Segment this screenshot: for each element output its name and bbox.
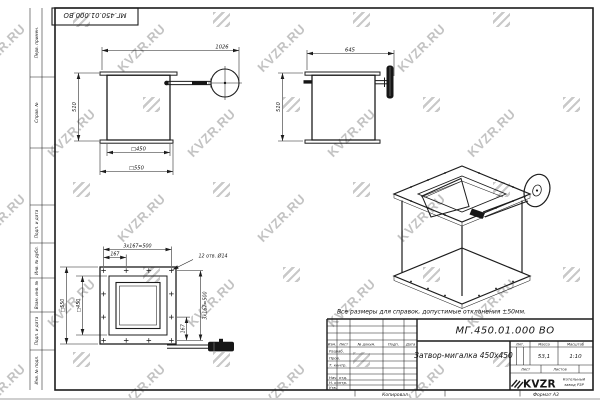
isometric-view (394, 166, 554, 309)
title-block-rows: Разраб. Пров. Т. контр. Нач. отд. Н. кон… (329, 348, 347, 390)
side-view: 645 510 (276, 48, 394, 144)
flange-outline (100, 267, 176, 344)
dim-offset-right: 167 (181, 324, 187, 333)
front-view: 1026 510 □450 □550 (72, 45, 242, 176)
valve-body (312, 75, 375, 140)
opening (116, 283, 160, 329)
dim-pitch-top: 3x167=500 (123, 244, 151, 250)
bottom-flange (100, 140, 173, 143)
doc-number: МГ.450.01.000 ВО (456, 326, 555, 337)
plan-view: 3x167=500 167 12 отв. Ø14 □450 □550 3x16… (60, 244, 234, 352)
bolt-holes (101, 268, 173, 342)
row-prov: Пров. (329, 355, 340, 360)
col-podp: Подп. (388, 342, 399, 346)
mass-label: Масса (538, 343, 549, 347)
col-doc: № докум. (357, 342, 376, 346)
company-name-line1: Котельный (563, 377, 586, 382)
margin-label: Подп. и дата (34, 209, 39, 238)
drawing-title: Затвор-мигалка 450x450 (414, 351, 513, 360)
mass-value: 53,1 (538, 354, 550, 360)
row-tkontr: Т. контр. (329, 362, 347, 367)
top-flange-iso (394, 166, 530, 222)
dim-offset-top: 167 (110, 252, 119, 258)
margin-label: Справ. № (34, 102, 39, 123)
drawing-sheet: KVZR.RUKVZR.RUKVZR.RUKVZR.RUKVZR.RUKVZR.… (0, 0, 600, 400)
margin-label: Взам. инв. № (34, 280, 39, 309)
scale-value: 1:10 (569, 354, 582, 360)
col-list: Лист (338, 342, 349, 346)
hinge-pin (304, 80, 313, 83)
lever-rod (192, 81, 207, 84)
row-nachotd: Нач. отд. (329, 375, 347, 380)
dim-pitch-right: 3x167=500 (203, 291, 209, 319)
margin-label: Перв. примен. (34, 27, 39, 58)
kvzr-stripes-icon (512, 380, 524, 389)
company-name-line2: завод РЗР (564, 382, 584, 387)
stamp-doc-number: МГ.450.01.000 ВО (63, 11, 127, 19)
row-razrab: Разраб. (329, 348, 344, 353)
logo-text: KVZR (523, 379, 556, 391)
scale-label: Масштаб (567, 343, 585, 347)
duct-outline (109, 276, 167, 335)
format-label: Формат А3 (533, 392, 559, 398)
row-utv: Утв. (329, 385, 337, 390)
pivot (164, 81, 169, 86)
sheet-label: Лист (520, 368, 531, 372)
margin-label: Инв. № дубл. (34, 246, 39, 275)
lit-label: Лит. (515, 343, 524, 347)
valve-body (107, 75, 170, 140)
dim-645: 645 (345, 48, 356, 54)
title-block-headers: Изм. Лист № докум. Подп. Дата (328, 342, 415, 346)
dim-1026: 1026 (215, 45, 229, 51)
counterweight-iso (520, 171, 554, 210)
drawing-svg: Перв. примен. Справ. № Подп. и дата Инв.… (0, 0, 600, 400)
dim-outer-550: □550 (60, 299, 66, 313)
dim-outer-550: □550 (129, 166, 145, 172)
kvzr-logo: KVZR Котельный завод РЗР (512, 377, 586, 391)
sheets-label: Листов (552, 368, 566, 372)
dim-inner-450: □450 (76, 299, 82, 313)
bottom-flange (305, 140, 380, 143)
col-data: Дата (405, 342, 415, 346)
general-note: Все размеры для справок, допустимые откл… (337, 309, 526, 316)
col-izm: Изм. (328, 342, 336, 346)
top-stamp: МГ.450.01.000 ВО (52, 8, 138, 25)
footer-strip: Копировал Формат А3 (355, 390, 559, 398)
dim-inner-450: □450 (131, 147, 147, 153)
flap-plate (422, 179, 469, 218)
copied-label: Копировал (382, 392, 408, 398)
dim-510: 510 (72, 101, 78, 112)
margin-labels: Перв. примен. Справ. № Подп. и дата Инв.… (34, 27, 39, 385)
title-block: Изм. Лист № докум. Подп. Дата Разраб. Пр… (327, 319, 593, 391)
weight-top-view (208, 342, 234, 352)
margin-label: Инв. № подл. (34, 356, 39, 385)
dim-510: 510 (276, 101, 282, 112)
dim-holes-note: 12 отв. Ø14 (198, 253, 227, 260)
margin-label: Подп. и дата (34, 316, 39, 345)
